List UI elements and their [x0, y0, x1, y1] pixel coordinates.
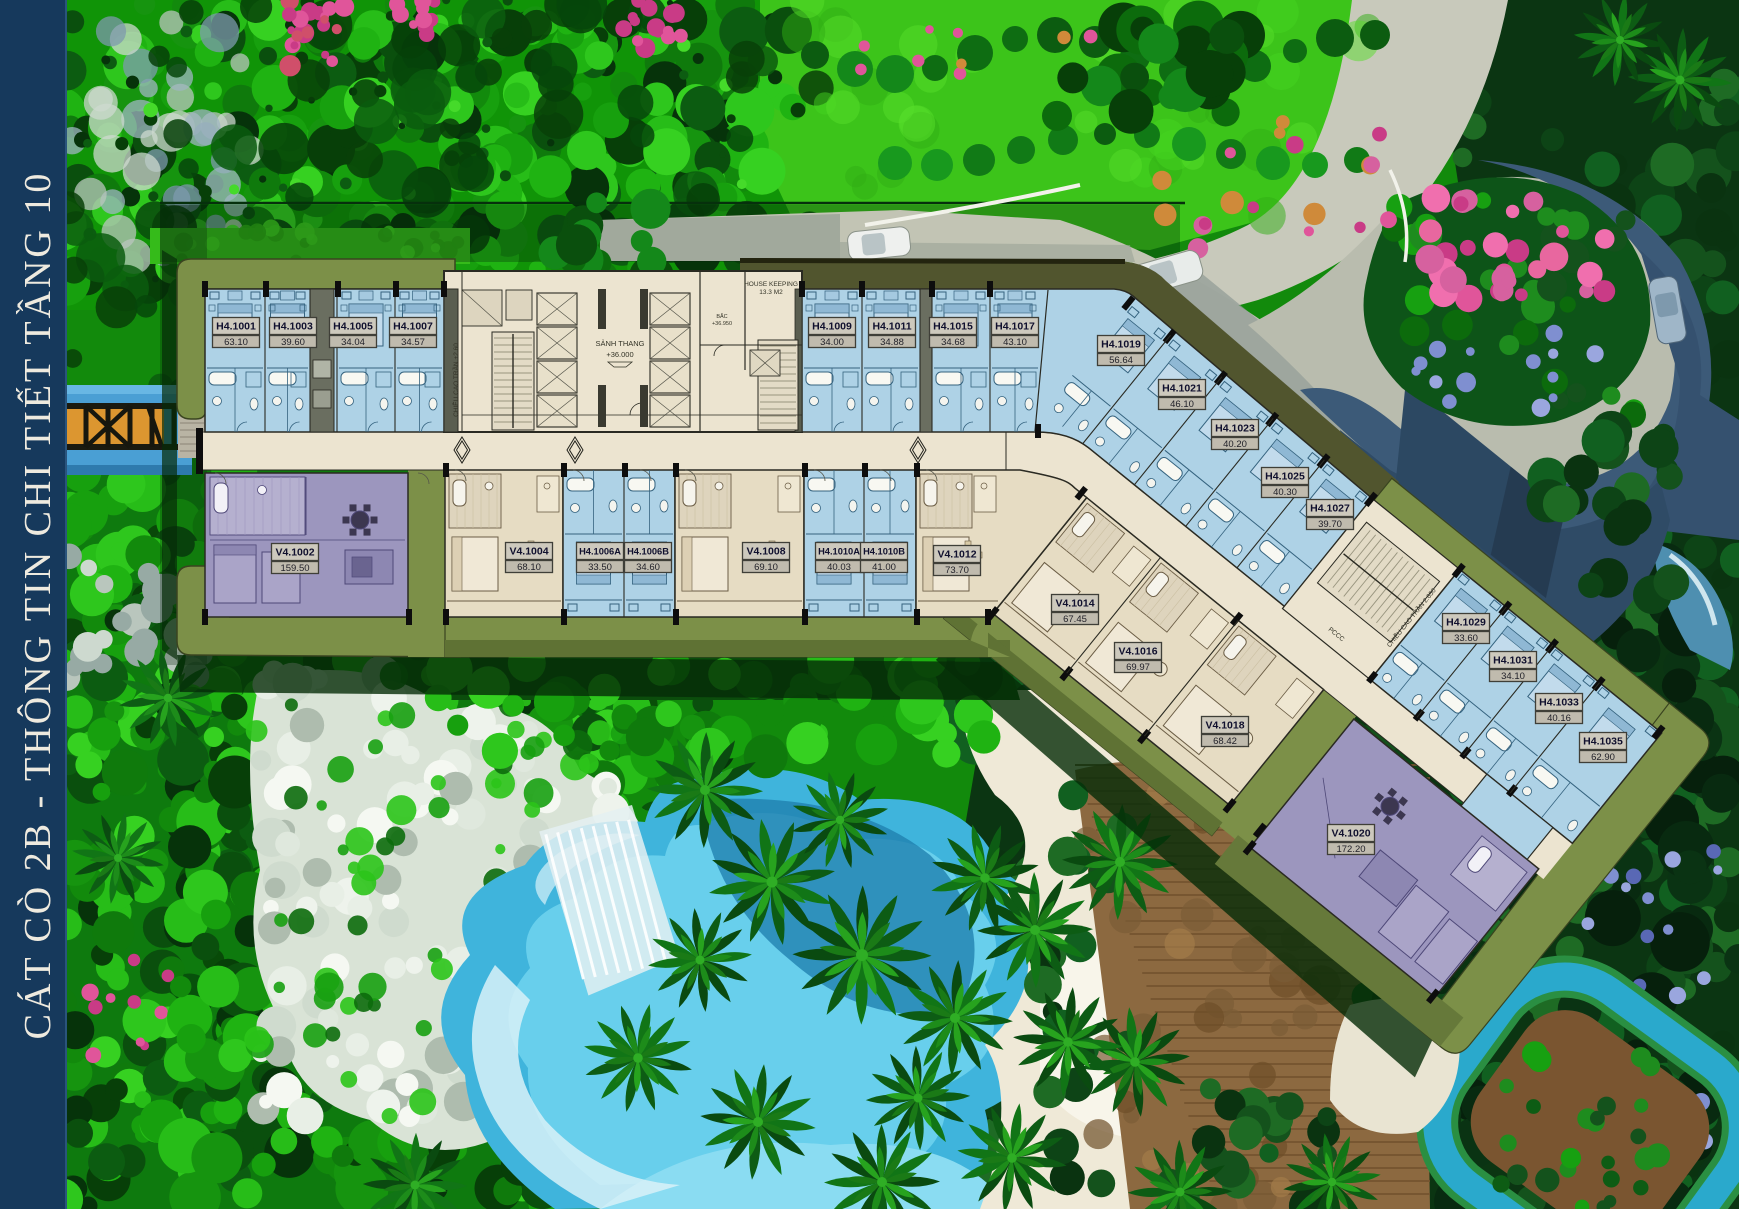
svg-text:+36.000: +36.000 [606, 350, 633, 359]
svg-text:H4.1011: H4.1011 [872, 321, 911, 333]
svg-text:40.16: 40.16 [1547, 713, 1571, 724]
svg-text:34.88: 34.88 [880, 337, 904, 348]
svg-text:56.64: 56.64 [1109, 355, 1133, 366]
svg-text:H4.1006B: H4.1006B [627, 547, 669, 557]
svg-text:33.50: 33.50 [588, 562, 612, 573]
svg-text:H4.1001: H4.1001 [216, 321, 256, 333]
svg-text:39.70: 39.70 [1318, 519, 1342, 530]
svg-text:40.03: 40.03 [827, 562, 851, 573]
svg-text:V4.1014: V4.1014 [1055, 598, 1094, 610]
svg-text:+36.950: +36.950 [712, 321, 732, 327]
svg-text:68.42: 68.42 [1213, 736, 1237, 747]
svg-text:H4.1031: H4.1031 [1493, 655, 1533, 667]
svg-text:69.97: 69.97 [1126, 662, 1150, 673]
svg-text:H4.1017: H4.1017 [995, 321, 1035, 333]
svg-text:172.20: 172.20 [1336, 844, 1365, 855]
svg-text:67.45: 67.45 [1063, 614, 1087, 625]
svg-text:34.04: 34.04 [341, 337, 365, 348]
svg-text:SẢNH THANG: SẢNH THANG [595, 339, 644, 348]
svg-text:46.10: 46.10 [1170, 399, 1194, 410]
svg-text:159.50: 159.50 [280, 563, 309, 574]
svg-text:V4.1002: V4.1002 [275, 547, 314, 559]
svg-text:BẮC: BẮC [716, 312, 727, 320]
svg-text:H4.1025: H4.1025 [1265, 471, 1305, 483]
svg-text:H4.1029: H4.1029 [1446, 617, 1486, 629]
svg-text:73.70: 73.70 [945, 565, 969, 576]
svg-text:H4.1009: H4.1009 [812, 321, 852, 333]
svg-text:H4.1023: H4.1023 [1215, 423, 1255, 435]
svg-text:H4.1003: H4.1003 [273, 321, 313, 333]
svg-text:H4.1021: H4.1021 [1162, 383, 1202, 395]
svg-text:H4.1035: H4.1035 [1583, 736, 1623, 748]
svg-text:H4.1010B: H4.1010B [863, 547, 905, 557]
svg-text:34.57: 34.57 [401, 337, 425, 348]
svg-text:40.20: 40.20 [1223, 439, 1247, 450]
svg-text:69.10: 69.10 [754, 562, 778, 573]
svg-text:V4.1020: V4.1020 [1331, 828, 1370, 840]
svg-text:62.90: 62.90 [1591, 752, 1615, 763]
svg-text:H4.1015: H4.1015 [933, 321, 973, 333]
svg-text:41.00: 41.00 [872, 562, 896, 573]
svg-text:V4.1012: V4.1012 [937, 549, 976, 561]
svg-text:H4.1005: H4.1005 [333, 321, 373, 333]
svg-text:H4.1007: H4.1007 [393, 321, 433, 333]
svg-text:43.10: 43.10 [1003, 337, 1027, 348]
svg-text:33.60: 33.60 [1454, 633, 1478, 644]
svg-text:34.60: 34.60 [636, 562, 660, 573]
svg-text:13.3 M2: 13.3 M2 [759, 289, 783, 296]
svg-text:63.10: 63.10 [224, 337, 248, 348]
svg-text:V4.1018: V4.1018 [1205, 720, 1244, 732]
svg-text:34.10: 34.10 [1501, 671, 1525, 682]
svg-text:40.30: 40.30 [1273, 487, 1297, 498]
svg-text:68.10: 68.10 [517, 562, 541, 573]
svg-text:H4.1010A: H4.1010A [818, 547, 860, 557]
svg-text:HOUSE KEEPING: HOUSE KEEPING [744, 281, 798, 288]
svg-text:V4.1008: V4.1008 [746, 546, 785, 558]
svg-text:CÁT CÒ 2B - THÔNG TIN CHI TIẾT: CÁT CÒ 2B - THÔNG TIN CHI TIẾT TẦNG 10 [16, 171, 59, 1040]
svg-text:H4.1027: H4.1027 [1310, 503, 1350, 515]
svg-text:H4.1006A: H4.1006A [579, 547, 621, 557]
svg-text:34.00: 34.00 [820, 337, 844, 348]
svg-text:H4.1033: H4.1033 [1539, 697, 1579, 709]
svg-text:39.60: 39.60 [281, 337, 305, 348]
svg-text:V4.1016: V4.1016 [1118, 646, 1157, 658]
svg-text:34.68: 34.68 [941, 337, 965, 348]
svg-text:V4.1004: V4.1004 [509, 546, 548, 558]
svg-text:H4.1019: H4.1019 [1101, 339, 1141, 351]
